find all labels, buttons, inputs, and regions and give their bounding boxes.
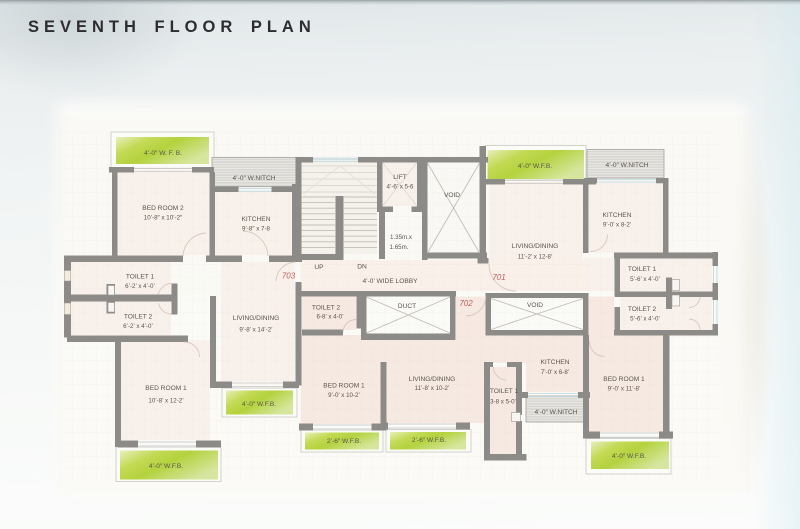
svg-text:703: 703 xyxy=(282,272,296,281)
svg-text:6’-2’ x 4’-0’: 6’-2’ x 4’-0’ xyxy=(123,323,153,330)
svg-text:LIVING/DINING: LIVING/DINING xyxy=(233,315,280,322)
svg-text:9’-0’ x 10-2’: 9’-0’ x 10-2’ xyxy=(328,392,360,399)
svg-text:BED ROOM 1: BED ROOM 1 xyxy=(603,376,645,383)
svg-text:DUCT: DUCT xyxy=(398,303,416,310)
svg-text:TOILET 1: TOILET 1 xyxy=(490,388,519,395)
svg-text:9’-8″ x 7-8: 9’-8″ x 7-8 xyxy=(242,226,271,233)
svg-text:9’-0’ x 11’-8’: 9’-0’ x 11’-8’ xyxy=(608,386,641,393)
svg-text:TOILET 1: TOILET 1 xyxy=(628,266,657,273)
svg-text:2’-6″ W.F.B.: 2’-6″ W.F.B. xyxy=(327,438,361,445)
svg-text:BED ROOM 2: BED ROOM 2 xyxy=(142,205,184,212)
svg-text:1.65m.: 1.65m. xyxy=(390,244,409,251)
svg-text:KITCHEN: KITCHEN xyxy=(242,216,271,223)
svg-text:LIVING/DINING: LIVING/DINING xyxy=(512,243,559,250)
svg-text:TOILET 1: TOILET 1 xyxy=(126,274,155,281)
svg-text:5’-6’ x 4’-0’: 5’-6’ x 4’-0’ xyxy=(630,316,660,323)
svg-text:701: 701 xyxy=(492,273,505,282)
svg-text:11’-2’ x 12-8’: 11’-2’ x 12-8’ xyxy=(518,254,553,261)
svg-text:6’-2’ x 4’-0’: 6’-2’ x 4’-0’ xyxy=(125,283,155,290)
svg-text:UP: UP xyxy=(314,264,324,271)
svg-text:4’-6’ x 5-6: 4’-6’ x 5-6 xyxy=(387,184,414,191)
svg-text:TOILET 2: TOILET 2 xyxy=(124,314,153,321)
svg-text:5’-6’ x 4’-0’: 5’-6’ x 4’-0’ xyxy=(630,276,660,283)
svg-text:9’-0’ x 8-2’: 9’-0’ x 8-2’ xyxy=(603,222,631,229)
svg-text:KITCHEN: KITCHEN xyxy=(603,212,632,219)
svg-text:6-8’ x 4-0’: 6-8’ x 4-0’ xyxy=(317,314,344,321)
svg-text:4’-0″ W.F.B.: 4’-0″ W.F.B. xyxy=(518,163,552,170)
svg-text:4’-0″ W.NITCH: 4’-0″ W.NITCH xyxy=(606,162,649,169)
svg-text:4’-0″ W. F. B.: 4’-0″ W. F. B. xyxy=(144,150,182,157)
svg-text:4’-0″ W.F.B.: 4’-0″ W.F.B. xyxy=(149,463,183,470)
svg-text:4’-0″ W.F.B.: 4’-0″ W.F.B. xyxy=(242,401,276,408)
svg-text:702: 702 xyxy=(459,299,473,308)
svg-text:4’-0″ W.NITCH: 4’-0″ W.NITCH xyxy=(233,175,276,182)
svg-text:4’-0’ WIDE LOBBY: 4’-0’ WIDE LOBBY xyxy=(362,278,418,285)
svg-text:10’-8’ x 12-2’: 10’-8’ x 12-2’ xyxy=(148,398,183,405)
svg-text:4’-0″ W.F.B.: 4’-0″ W.F.B. xyxy=(612,453,646,460)
svg-text:LIFT: LIFT xyxy=(393,174,407,181)
svg-text:DN: DN xyxy=(357,264,367,271)
svg-text:BED ROOM 1: BED ROOM 1 xyxy=(145,385,187,392)
svg-text:1.35m.x: 1.35m.x xyxy=(390,234,413,241)
svg-text:KITCHEN: KITCHEN xyxy=(541,359,570,366)
svg-text:LIVING/DINING: LIVING/DINING xyxy=(409,376,456,383)
svg-text:10’-8″ x 10’-2″: 10’-8″ x 10’-2″ xyxy=(144,215,183,222)
svg-text:11’-8’ x 10-2’: 11’-8’ x 10-2’ xyxy=(415,385,450,392)
svg-text:TOILET 2: TOILET 2 xyxy=(312,305,341,312)
svg-text:7’-0’ x 6-8’: 7’-0’ x 6-8’ xyxy=(541,369,569,376)
svg-text:VOID: VOID xyxy=(527,302,543,309)
svg-text:BED ROOM 1: BED ROOM 1 xyxy=(323,383,365,390)
svg-text:9’-8’ x 14’-2’: 9’-8’ x 14’-2’ xyxy=(239,327,272,334)
svg-text:VOID: VOID xyxy=(444,192,460,199)
svg-text:TOILET 2: TOILET 2 xyxy=(628,306,657,313)
svg-text:3-8 x 5-0’: 3-8 x 5-0’ xyxy=(490,399,516,406)
svg-text:4’-0″ W.NITCH: 4’-0″ W.NITCH xyxy=(535,409,578,416)
svg-text:2’-6″ W.F.B.: 2’-6″ W.F.B. xyxy=(412,437,446,444)
